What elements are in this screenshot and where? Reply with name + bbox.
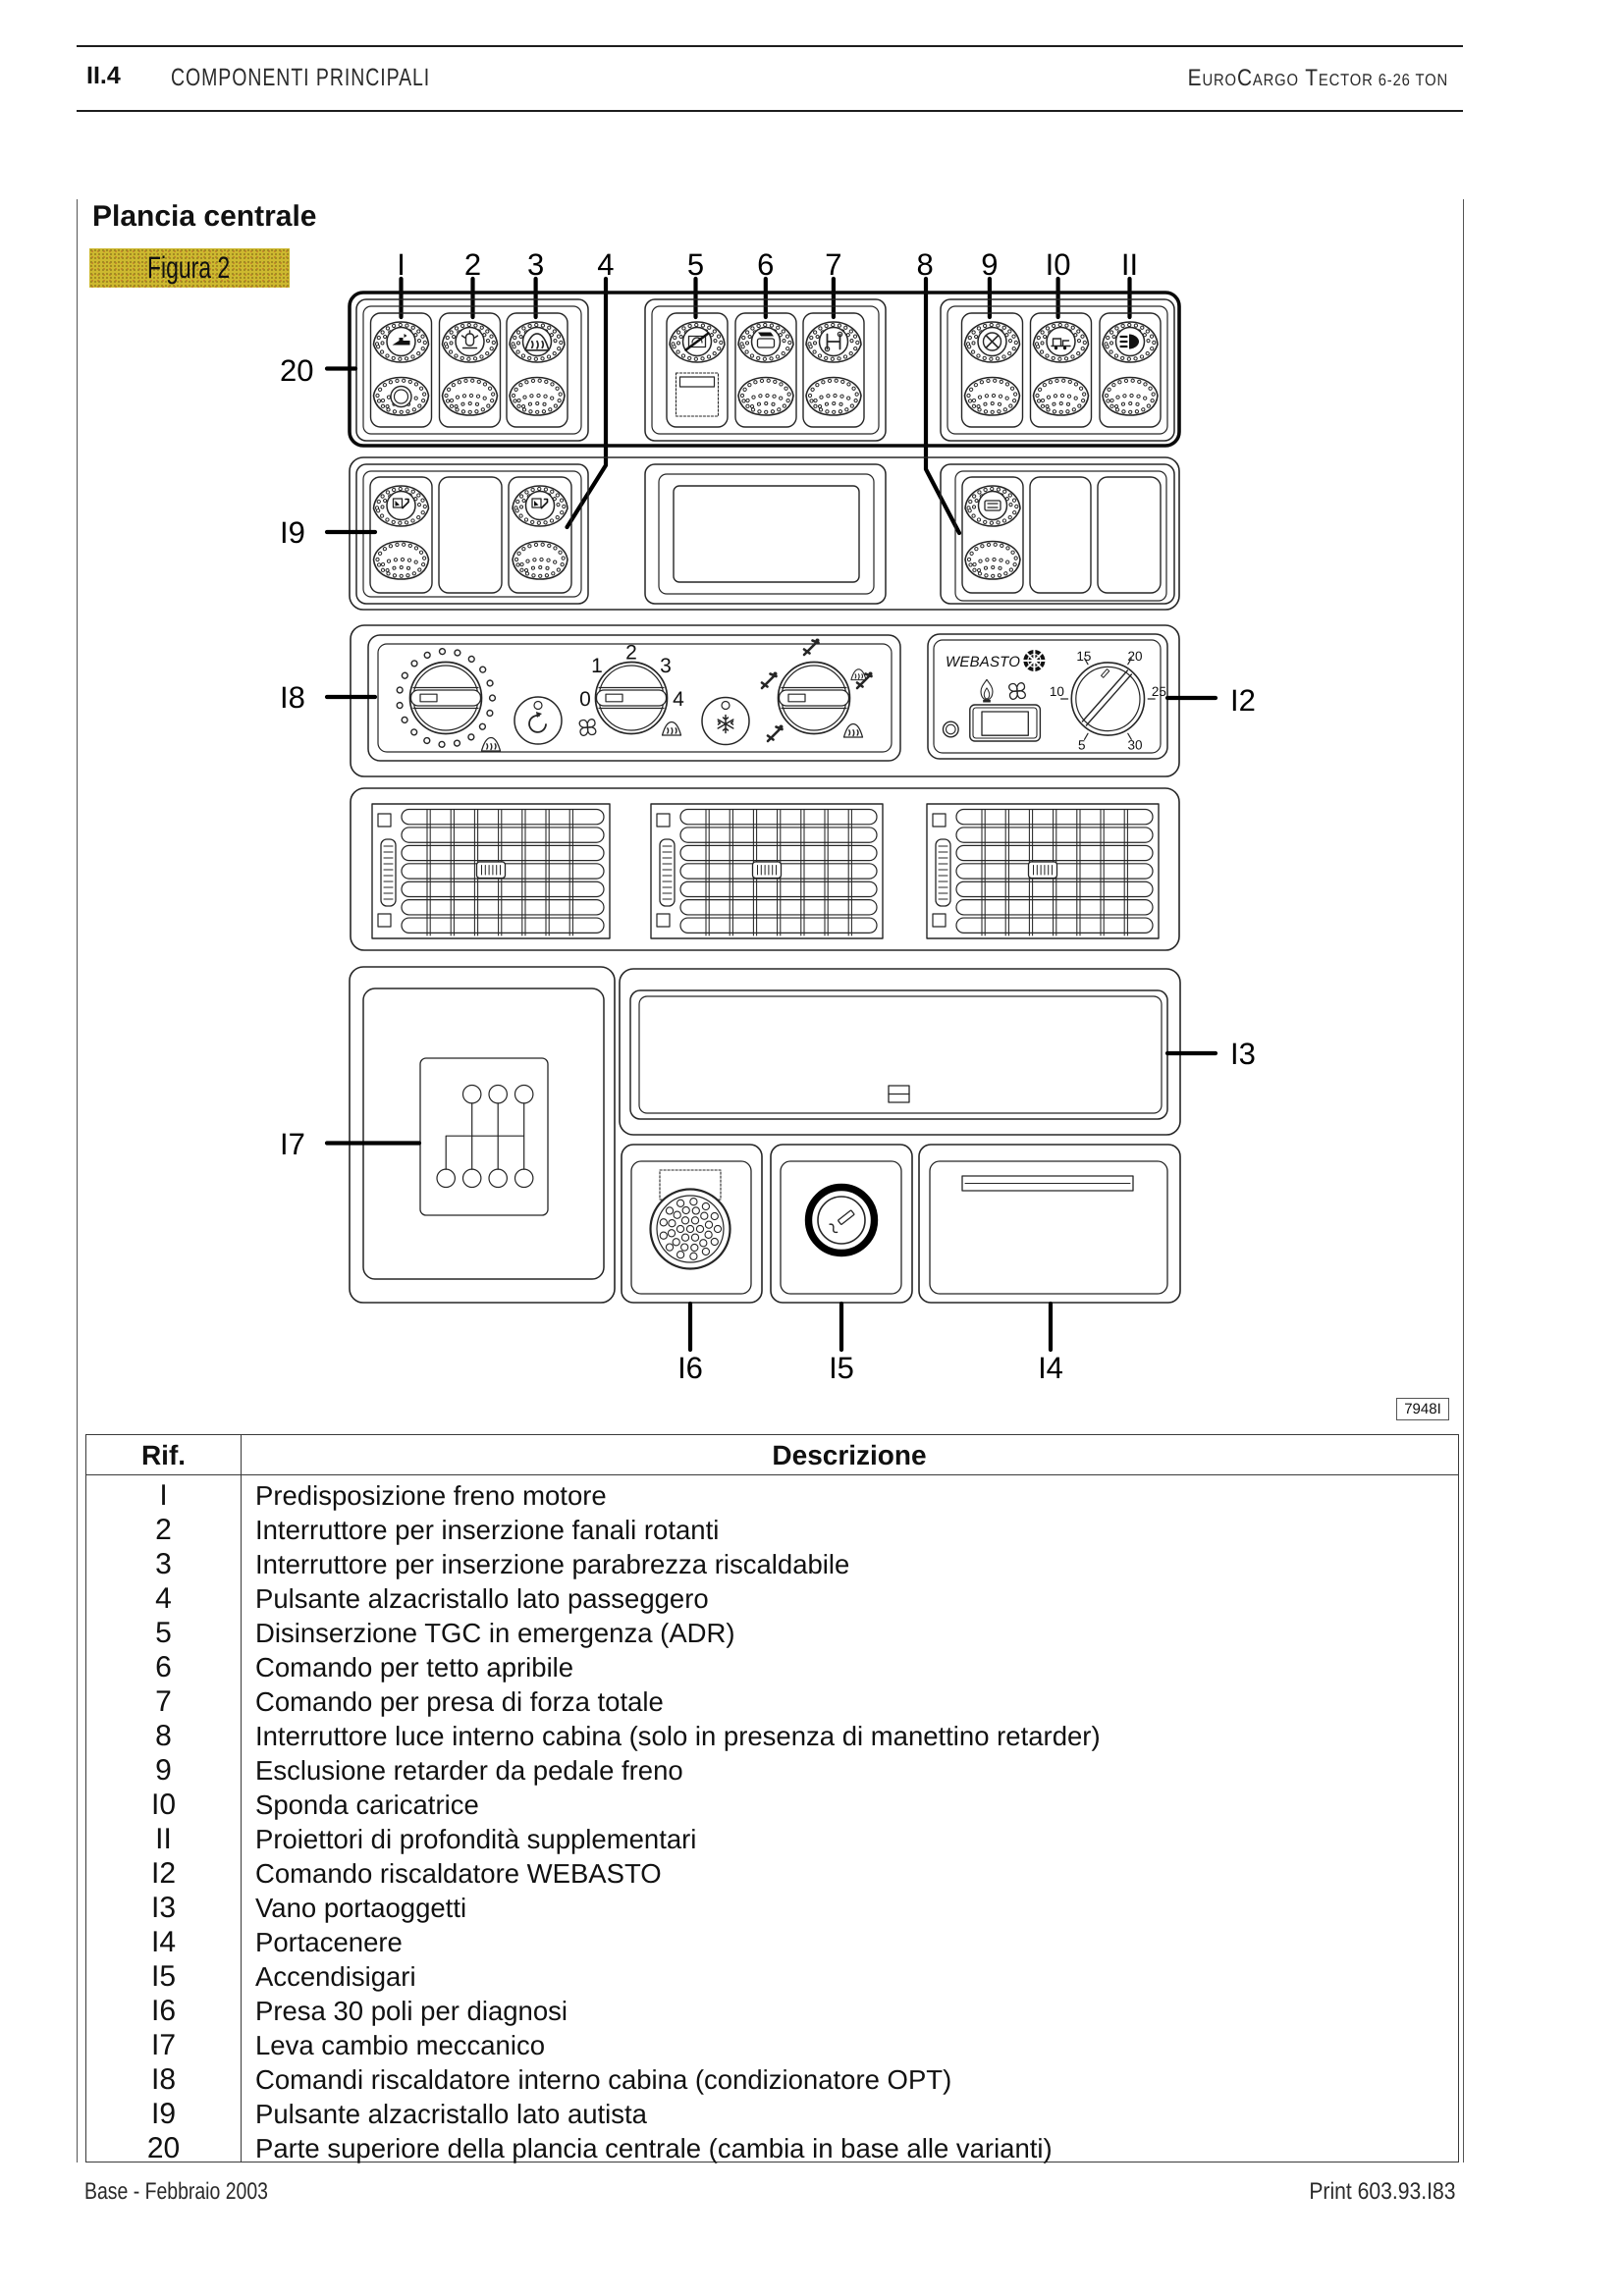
svg-text:2: 2 — [464, 247, 481, 282]
svg-text:I2: I2 — [1230, 683, 1256, 718]
svg-text:4: 4 — [673, 688, 684, 711]
svg-text:I0: I0 — [1046, 247, 1071, 282]
svg-text:25: 25 — [1152, 684, 1166, 699]
svg-text:I5: I5 — [829, 1351, 854, 1385]
svg-text:10: 10 — [1050, 684, 1064, 699]
svg-text:WEBASTO: WEBASTO — [946, 654, 1020, 670]
svg-text:8: 8 — [916, 247, 933, 282]
svg-text:1: 1 — [591, 655, 603, 677]
svg-text:I8: I8 — [280, 680, 305, 715]
svg-text:0: 0 — [579, 688, 591, 711]
svg-text:3: 3 — [660, 655, 672, 677]
svg-text:15: 15 — [1076, 649, 1091, 664]
svg-text:I: I — [397, 247, 406, 282]
svg-text:30: 30 — [1127, 738, 1142, 753]
svg-text:2: 2 — [625, 642, 637, 665]
svg-text:7: 7 — [825, 247, 841, 282]
svg-text:I4: I4 — [1038, 1351, 1063, 1385]
svg-text:3: 3 — [527, 247, 544, 282]
svg-text:5: 5 — [687, 247, 704, 282]
svg-text:II: II — [1121, 247, 1138, 282]
svg-text:20: 20 — [280, 353, 313, 388]
svg-text:4: 4 — [597, 247, 614, 282]
svg-text:I6: I6 — [677, 1351, 703, 1385]
svg-text:I3: I3 — [1230, 1037, 1256, 1071]
svg-text:6: 6 — [757, 247, 774, 282]
svg-text:I7: I7 — [280, 1127, 305, 1161]
svg-text:9: 9 — [981, 247, 998, 282]
svg-text:I9: I9 — [280, 515, 305, 550]
svg-text:5: 5 — [1078, 738, 1086, 753]
